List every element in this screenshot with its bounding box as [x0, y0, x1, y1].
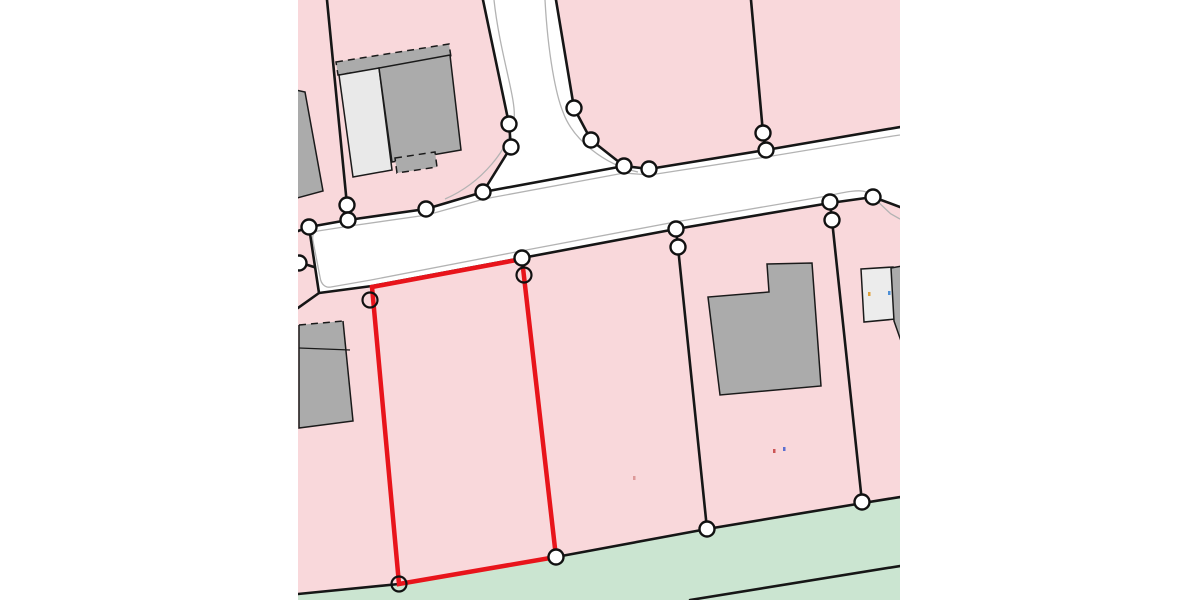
vertex-node-15[interactable] — [671, 240, 686, 255]
tiny-label-speck-2 — [773, 449, 776, 453]
vertex-node-9[interactable] — [584, 133, 599, 148]
vertex-node-1[interactable] — [298, 256, 307, 271]
vertex-node-20[interactable] — [549, 550, 564, 565]
vertex-node-0[interactable] — [302, 220, 317, 235]
vertex-node-11[interactable] — [642, 162, 657, 177]
map-svg — [298, 0, 900, 600]
vertex-node-12[interactable] — [756, 126, 771, 141]
cadastral-map-canvas — [0, 0, 1200, 600]
vertex-node-18[interactable] — [866, 190, 881, 205]
vertex-node-17[interactable] — [825, 213, 840, 228]
vertex-node-4[interactable] — [419, 202, 434, 217]
vertex-node-22[interactable] — [855, 495, 870, 510]
vertex-node-13[interactable] — [759, 143, 774, 158]
vertex-node-10[interactable] — [617, 159, 632, 174]
vertex-node-16[interactable] — [823, 195, 838, 210]
tiny-label-speck-1 — [888, 291, 891, 295]
vertex-node-8[interactable] — [567, 101, 582, 116]
vertex-node-2[interactable] — [340, 198, 355, 213]
tiny-label-speck-3 — [783, 447, 786, 451]
vertex-node-7[interactable] — [504, 140, 519, 155]
tiny-label-speck-0 — [868, 292, 871, 296]
vertex-node-5[interactable] — [476, 185, 491, 200]
vertex-node-3[interactable] — [341, 213, 356, 228]
vertex-node-19[interactable] — [515, 251, 530, 266]
building-topleft-main — [379, 55, 461, 162]
vertex-node-14[interactable] — [669, 222, 684, 237]
vertex-node-21[interactable] — [700, 522, 715, 537]
tiny-label-speck-4 — [633, 476, 636, 480]
vertex-node-6[interactable] — [502, 117, 517, 132]
